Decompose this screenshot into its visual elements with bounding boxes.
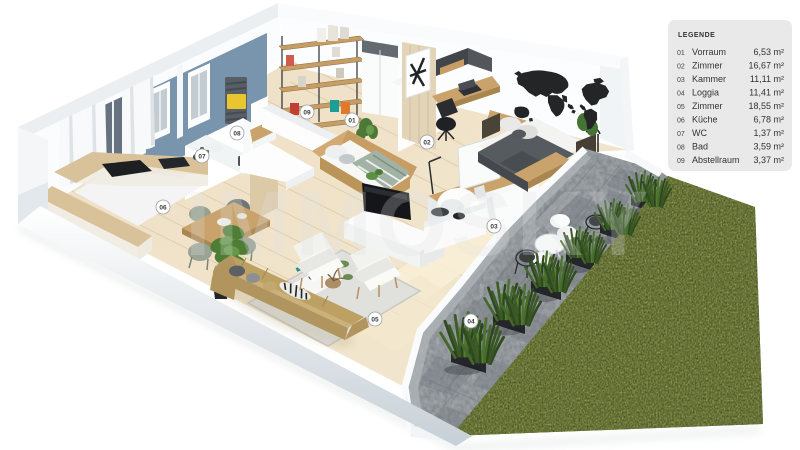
svg-text:04: 04 (677, 91, 685, 98)
svg-text:18,55 m²: 18,55 m² (748, 101, 784, 111)
svg-text:06: 06 (677, 118, 685, 125)
svg-text:05: 05 (677, 104, 685, 111)
svg-text:02: 02 (677, 64, 685, 71)
svg-text:Vorraum: Vorraum (692, 47, 726, 57)
svg-text:IMMOSKY: IMMOSKY (185, 173, 653, 275)
svg-text:16,67 m²: 16,67 m² (748, 61, 784, 71)
svg-text:04: 04 (467, 319, 475, 326)
svg-text:1,37 m²: 1,37 m² (753, 128, 784, 138)
svg-text:01: 01 (348, 118, 356, 125)
svg-text:06: 06 (159, 205, 167, 212)
svg-text:3,37 m²: 3,37 m² (753, 155, 784, 165)
svg-text:Zimmer: Zimmer (692, 101, 723, 111)
svg-text:05: 05 (371, 317, 379, 324)
svg-text:11,41 m²: 11,41 m² (749, 88, 784, 98)
svg-text:09: 09 (677, 158, 685, 165)
svg-text:08: 08 (233, 131, 241, 138)
svg-text:07: 07 (677, 131, 685, 138)
svg-text:09: 09 (303, 110, 311, 117)
svg-text:Zimmer: Zimmer (692, 61, 723, 71)
svg-text:WC: WC (692, 128, 707, 138)
svg-text:6,78 m²: 6,78 m² (753, 115, 784, 125)
svg-text:08: 08 (677, 145, 685, 152)
svg-text:03: 03 (490, 224, 498, 231)
svg-text:11,11 m²: 11,11 m² (750, 74, 784, 84)
svg-text:07: 07 (198, 154, 206, 161)
svg-text:Loggia: Loggia (692, 88, 719, 98)
svg-text:6,53 m²: 6,53 m² (753, 47, 784, 57)
svg-text:Abstellraum: Abstellraum (692, 155, 740, 165)
svg-text:03: 03 (677, 77, 685, 84)
svg-text:Küche: Küche (692, 115, 718, 125)
svg-text:02: 02 (423, 140, 431, 147)
svg-text:LEGENDE: LEGENDE (678, 32, 715, 39)
svg-text:01: 01 (677, 50, 685, 57)
svg-text:Kammer: Kammer (692, 74, 726, 84)
svg-text:3,59 m²: 3,59 m² (753, 142, 784, 152)
svg-text:Bad: Bad (692, 142, 708, 152)
